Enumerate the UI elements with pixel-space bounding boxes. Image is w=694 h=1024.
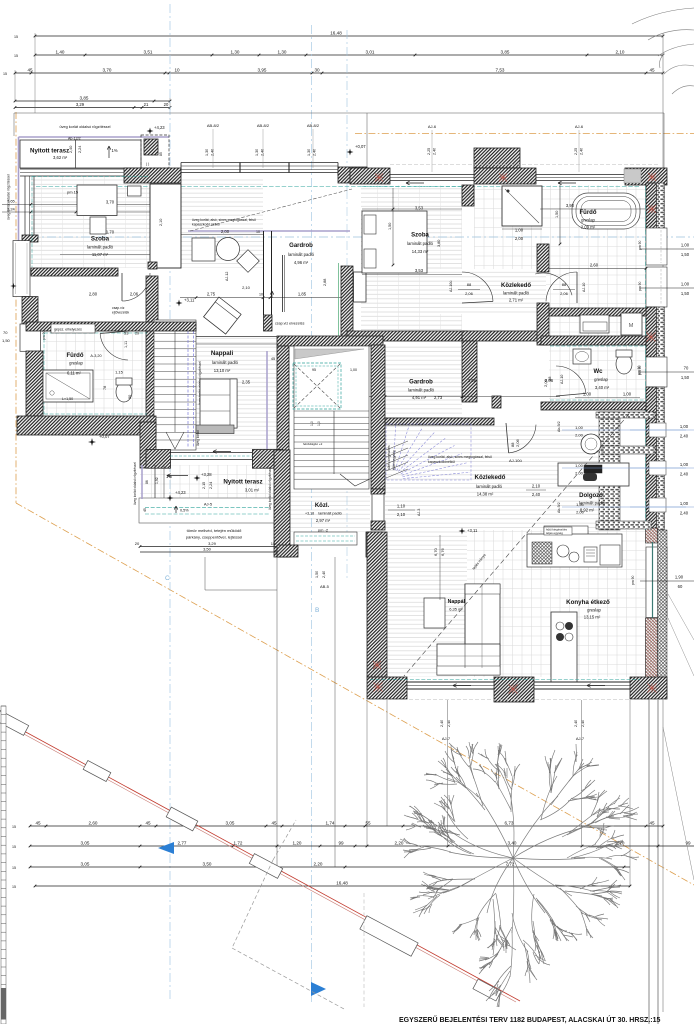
svg-text:üveg korlát oldalsó rögzítésse: üveg korlát oldalsó rögzítéssel (133, 462, 137, 505)
svg-text:AJ-7: AJ-7 (576, 736, 585, 741)
svg-text:1,30: 1,30 (278, 50, 287, 55)
svg-text:88: 88 (562, 282, 567, 287)
svg-text:1,15: 1,15 (115, 370, 124, 375)
svg-text:1,92: 1,92 (155, 477, 159, 484)
svg-text:15: 15 (12, 885, 16, 889)
svg-text:kültéri egység: kültéri egység (392, 450, 396, 470)
svg-text:2,73: 2,73 (434, 395, 443, 400)
svg-text:AB-8/2: AB-8/2 (257, 123, 270, 128)
svg-text:1,00: 1,00 (515, 228, 524, 233)
svg-text:3,05: 3,05 (81, 841, 90, 846)
svg-text:1,11: 1,11 (124, 341, 128, 348)
svg-text:45: 45 (145, 821, 151, 826)
svg-text:2,25: 2,25 (574, 148, 578, 155)
svg-text:1,50: 1,50 (555, 211, 559, 218)
svg-text:3,29: 3,29 (208, 541, 217, 546)
svg-text:2,88: 2,88 (323, 279, 327, 286)
svg-text:1,50: 1,50 (681, 252, 690, 257)
svg-text:90: 90 (128, 395, 132, 399)
svg-text:3,70: 3,70 (103, 68, 112, 73)
svg-text:2,10: 2,10 (397, 512, 406, 517)
svg-text:2,06: 2,06 (545, 378, 554, 383)
svg-text:+4,23: +4,23 (154, 125, 165, 130)
svg-text:45: 45 (649, 68, 655, 73)
svg-text:3,05: 3,05 (81, 862, 90, 867)
svg-text:Konyha étkező: Konyha étkező (566, 599, 610, 606)
svg-text:3,50: 3,50 (203, 547, 212, 552)
svg-text:3,85: 3,85 (80, 96, 89, 101)
svg-text:greslap: greslap (581, 218, 595, 223)
svg-text:teljes egység: teljes egység (546, 531, 563, 535)
svg-text:+3,11: +3,11 (184, 298, 195, 303)
svg-text:1,30: 1,30 (205, 149, 209, 156)
svg-text:20: 20 (164, 102, 169, 107)
svg-text:1,50: 1,50 (315, 571, 319, 578)
svg-text:üveg korlát, alsó, sínes megfo: üveg korlát, alsó, sínes megfogással, fe… (428, 455, 492, 459)
svg-text:3,53: 3,53 (415, 206, 424, 211)
svg-text:AJ-10: AJ-10 (560, 375, 564, 384)
svg-text:1,00: 1,00 (680, 462, 689, 467)
svg-text:Nappáli: Nappáli (448, 599, 467, 605)
svg-text:4,91 m²: 4,91 m² (412, 395, 427, 400)
svg-text:laminált padló: laminált padló (407, 241, 434, 246)
svg-text:6,73: 6,73 (505, 821, 514, 826)
svg-text:3,50: 3,50 (203, 862, 212, 867)
svg-text:Wc: Wc (594, 369, 604, 375)
svg-text:C: C (165, 575, 170, 582)
svg-text:2,40: 2,40 (261, 149, 265, 156)
svg-text:3,01: 3,01 (366, 50, 375, 55)
svg-text:2,00: 2,00 (515, 236, 524, 241)
svg-text:3,62 m²: 3,62 m² (53, 155, 68, 160)
svg-text:88: 88 (467, 282, 472, 287)
svg-text:Nappali: Nappali (211, 350, 234, 357)
svg-text:2,00: 2,00 (575, 471, 584, 476)
svg-text:15: 15 (14, 54, 18, 58)
svg-text:3,40 m²: 3,40 m² (595, 385, 610, 390)
svg-text:Fürdő: Fürdő (67, 353, 84, 359)
svg-text:+0,07: +0,07 (99, 434, 110, 439)
svg-text:1,70: 1,70 (106, 230, 115, 235)
svg-text:2,40: 2,40 (313, 149, 317, 156)
svg-text:Szoba: Szoba (91, 236, 110, 243)
svg-text:85: 85 (159, 152, 163, 156)
svg-text:üveg korlát oldalsó rögzítésse: üveg korlát oldalsó rögzítéssel (59, 125, 110, 129)
svg-text:45: 45 (271, 357, 275, 361)
svg-text:1,20: 1,20 (293, 841, 302, 846)
svg-text:1,50: 1,50 (681, 291, 690, 296)
svg-text:14,38 m²: 14,38 m² (477, 492, 494, 497)
svg-text:Dolgozó: Dolgozó (579, 493, 603, 499)
svg-text:29: 29 (135, 332, 139, 336)
svg-text:86: 86 (145, 480, 149, 484)
svg-text:3,29: 3,29 (76, 102, 85, 107)
svg-text:1,00: 1,00 (575, 463, 584, 468)
svg-text:1,00: 1,00 (583, 392, 592, 397)
svg-text:15: 15 (12, 866, 16, 870)
svg-text:2,40: 2,40 (532, 492, 541, 497)
svg-text:1%: 1% (112, 148, 118, 153)
svg-text:3,90: 3,90 (566, 203, 575, 208)
svg-text:0,5%: 0,5% (180, 509, 189, 513)
svg-text:laminált padló: laminált padló (288, 252, 315, 257)
svg-text:1,50: 1,50 (2, 338, 11, 343)
svg-text:2,71 m²: 2,71 m² (509, 298, 524, 303)
svg-text:greslap: greslap (594, 377, 608, 382)
svg-text:16,48: 16,48 (330, 31, 342, 36)
svg-text:1,50: 1,50 (681, 375, 690, 380)
svg-text:( ): ( ) (146, 162, 149, 166)
svg-text:15: 15 (3, 72, 7, 76)
svg-text:+0,07: +0,07 (355, 144, 366, 149)
svg-text:1,00: 1,00 (680, 424, 689, 429)
svg-text:EGYSZERŰ BEJELENTÉSI TERV 1182: EGYSZERŰ BEJELENTÉSI TERV 1182 BUDAPEST,… (399, 1015, 661, 1024)
svg-text:Fürdő: Fürdő (580, 210, 597, 216)
svg-text:2,06: 2,06 (465, 291, 474, 296)
svg-text:AJ-5: AJ-5 (204, 502, 213, 507)
svg-text:Gardrob: Gardrob (289, 243, 313, 249)
svg-text:99: 99 (338, 841, 344, 846)
svg-text:16,48: 16,48 (336, 881, 348, 886)
svg-text:1,90: 1,90 (675, 575, 684, 580)
svg-text:greslap: greslap (587, 608, 601, 613)
svg-text:2,40: 2,40 (433, 148, 437, 155)
svg-text:1,0: 1,0 (317, 421, 321, 426)
svg-text:1,00: 1,00 (680, 501, 689, 506)
svg-text:AJ-6: AJ-6 (575, 124, 584, 129)
svg-text:2,00: 2,00 (221, 229, 230, 234)
svg-text:1,40: 1,40 (56, 50, 65, 55)
svg-text:+3,28: +3,28 (201, 472, 212, 477)
svg-text:2,75: 2,75 (207, 292, 216, 297)
svg-text:2,06: 2,06 (130, 292, 139, 297)
svg-text:21: 21 (144, 102, 149, 107)
svg-text:3,40: 3,40 (508, 841, 517, 846)
svg-text:Nyitott terasz: Nyitott terasz (223, 479, 262, 486)
svg-text:60: 60 (678, 584, 683, 589)
svg-text:laminált padló: laminált padló (318, 512, 341, 516)
svg-text:2,09 m²: 2,09 m² (581, 225, 596, 230)
svg-text:30: 30 (314, 68, 320, 73)
svg-text:70: 70 (684, 366, 689, 371)
svg-text:2,15: 2,15 (202, 482, 206, 489)
svg-text:tömör mellvéd, tetején működő: tömör mellvéd, tetején működő (187, 528, 242, 533)
svg-text:2,10: 2,10 (159, 219, 163, 226)
svg-text:Szoba: Szoba (411, 233, 429, 239)
svg-text:2,24: 2,24 (78, 146, 82, 153)
svg-text:2,40: 2,40 (680, 511, 689, 516)
svg-text:10: 10 (259, 293, 263, 297)
svg-text:Nyitott terasz: Nyitott terasz (30, 148, 69, 155)
svg-text:üveg korlát, alsó, sínes megfo: üveg korlát, alsó, sínes megfogással, fe… (192, 218, 256, 222)
svg-text:üveg korlát oldalsó rögzítésse: üveg korlát oldalsó rögzítéssel (268, 467, 272, 510)
svg-text:2,24: 2,24 (209, 482, 213, 489)
svg-text:hűtés kiegészítés: hűtés kiegészítés (387, 445, 391, 470)
svg-text:15: 15 (271, 541, 276, 546)
svg-text:14,33 m²: 14,33 m² (412, 249, 429, 254)
svg-text:A-3,20: A-3,20 (90, 354, 101, 358)
svg-text:AJ-3: AJ-3 (417, 509, 421, 516)
svg-text:Közl.: Közl. (315, 503, 330, 509)
svg-text:AB-8/2: AB-8/2 (307, 123, 320, 128)
svg-text:1,10: 1,10 (397, 504, 406, 509)
svg-text:2,60: 2,60 (590, 263, 599, 268)
svg-text:1,00: 1,00 (575, 425, 584, 430)
svg-text:AJ-10ü: AJ-10ü (509, 458, 522, 463)
svg-text:1,30: 1,30 (307, 149, 311, 156)
svg-text:csap.víz elvezetés: csap.víz elvezetés (275, 322, 305, 326)
svg-text:45: 45 (35, 821, 41, 826)
svg-text:1%: 1% (166, 474, 172, 479)
svg-text:párkány, cseppentővel, lejtéss: párkány, cseppentővel, lejtéssel (186, 535, 243, 540)
svg-text:53: 53 (124, 331, 129, 336)
svg-text:AJ-12: AJ-12 (225, 272, 229, 281)
svg-text:3,80: 3,80 (437, 240, 441, 247)
svg-text:laminált padló: laminált padló (476, 484, 503, 489)
svg-text:+3,18: +3,18 (305, 512, 314, 516)
svg-text:2,20: 2,20 (314, 862, 323, 867)
svg-text:1,00: 1,00 (623, 392, 632, 397)
svg-text:2,10: 2,10 (616, 50, 625, 55)
svg-text:AJ-7: AJ-7 (442, 736, 451, 741)
svg-text:2,40: 2,40 (440, 720, 444, 727)
svg-text:+3,11: +3,11 (467, 528, 478, 533)
svg-text:2,40: 2,40 (69, 146, 73, 153)
svg-text:20: 20 (135, 541, 140, 546)
svg-text:70: 70 (3, 330, 8, 335)
svg-text:2,00: 2,00 (575, 433, 584, 438)
svg-text:üveg korlát oldalsó rögzítésse: üveg korlát oldalsó rögzítéssel (7, 174, 11, 220)
svg-text:1,30: 1,30 (255, 149, 259, 156)
svg-text:2,40: 2,40 (574, 720, 578, 727)
svg-text:3,51: 3,51 (144, 50, 153, 55)
svg-text:ejtővezeték: ejtővezeték (112, 311, 129, 315)
svg-text:üveg korlát: üveg korlát (196, 430, 200, 446)
svg-text:45: 45 (27, 68, 33, 73)
svg-text:AJ-10: AJ-10 (582, 283, 586, 292)
svg-text:greslap: greslap (69, 361, 83, 366)
svg-text:Gardrob: Gardrob (409, 380, 433, 386)
svg-text:2,06: 2,06 (515, 438, 520, 447)
svg-text:3,95: 3,95 (258, 68, 267, 73)
svg-text:15: 15 (12, 825, 16, 829)
svg-text:6,11 m²: 6,11 m² (67, 371, 81, 376)
svg-text:pm 90: pm 90 (638, 281, 642, 291)
svg-text:45: 45 (271, 821, 277, 826)
svg-text:L=1,50: L=1,50 (62, 397, 73, 401)
svg-text:2,06: 2,06 (560, 291, 569, 296)
svg-text:Közlekedő: Közlekedő (475, 474, 506, 481)
svg-text:10: 10 (256, 230, 260, 234)
svg-text:1,30: 1,30 (231, 50, 240, 55)
svg-text:felülvilágító +2: felülvilágító +2 (303, 442, 323, 446)
svg-text:1,0: 1,0 (310, 421, 314, 426)
svg-text:3,70: 3,70 (106, 200, 115, 205)
svg-text:2,40: 2,40 (580, 148, 584, 155)
svg-text:AB-8/2: AB-8/2 (207, 123, 220, 128)
svg-text:3,53: 3,53 (415, 268, 424, 273)
svg-text:45: 45 (649, 821, 655, 826)
svg-text:1,00: 1,00 (681, 282, 690, 287)
svg-text:10: 10 (174, 68, 180, 73)
svg-text:2,40: 2,40 (322, 571, 326, 578)
svg-text:3,05: 3,05 (226, 821, 235, 826)
svg-text:45: 45 (143, 508, 147, 512)
svg-text:Közlekedő: Közlekedő (501, 283, 531, 289)
svg-text:2,24: 2,24 (7, 206, 16, 211)
svg-text:1,74: 1,74 (326, 821, 335, 826)
svg-text:Ab-9/2: Ab-9/2 (557, 502, 561, 513)
svg-text:2,40: 2,40 (680, 472, 689, 477)
svg-text:15: 15 (14, 35, 18, 39)
svg-text:13,15 m²: 13,15 m² (584, 615, 601, 620)
svg-text:gépsz. elhelyezés: gépsz. elhelyezés (54, 328, 82, 332)
svg-text:2,80: 2,80 (89, 292, 98, 297)
svg-text:pm 15: pm 15 (67, 190, 79, 195)
svg-text:2,35: 2,35 (242, 380, 251, 385)
svg-text:csap.víz: csap.víz (112, 306, 125, 310)
svg-text:2,40: 2,40 (680, 434, 689, 439)
svg-text:1,72: 1,72 (234, 841, 243, 846)
svg-text:2,10: 2,10 (242, 285, 251, 290)
svg-text:pm 90: pm 90 (637, 365, 641, 375)
svg-text:4,96 m²: 4,96 m² (294, 260, 309, 265)
svg-text:laminált padló: laminált padló (212, 360, 239, 365)
svg-text:2,25: 2,25 (427, 148, 431, 155)
svg-text:laminált padló: laminált padló (87, 245, 114, 250)
svg-text:6,76: 6,76 (440, 547, 445, 556)
svg-text:AB-5: AB-5 (320, 584, 330, 589)
svg-text:Ab-9/2: Ab-9/2 (557, 421, 561, 432)
svg-text:95: 95 (312, 368, 316, 372)
svg-text:15: 15 (12, 845, 16, 849)
svg-text:AJ-10ü: AJ-10ü (449, 281, 453, 292)
svg-text:pm 90: pm 90 (638, 240, 642, 250)
svg-text:2,06: 2,06 (468, 378, 477, 383)
svg-text:1,50: 1,50 (576, 502, 585, 507)
svg-text:M: M (629, 323, 634, 329)
svg-text:2,60: 2,60 (89, 821, 98, 826)
svg-text:2,20: 2,20 (395, 841, 404, 846)
svg-text:78: 78 (103, 386, 107, 390)
svg-text:6,70: 6,70 (433, 547, 438, 556)
svg-text:kapaszkodónélkül: kapaszkodónélkül (428, 460, 455, 464)
svg-text:1,50: 1,50 (388, 223, 392, 230)
svg-text:pm 90: pm 90 (631, 575, 635, 585)
svg-text:1,00: 1,00 (681, 243, 690, 248)
svg-text:2,10: 2,10 (532, 484, 541, 489)
svg-text:1,85: 1,85 (298, 292, 307, 297)
svg-text:2,97 m²: 2,97 m² (316, 518, 331, 523)
svg-text:2,00: 2,00 (576, 510, 585, 515)
svg-text:3,85: 3,85 (501, 50, 510, 55)
svg-text:laminált padló: laminált padló (408, 388, 435, 393)
svg-text:1,00: 1,00 (350, 368, 357, 372)
svg-text:2,77: 2,77 (178, 841, 187, 846)
svg-text:13,10 m²: 13,10 m² (214, 368, 231, 373)
svg-text:55: 55 (365, 821, 371, 826)
svg-text:B: B (315, 607, 319, 614)
svg-text:1,65: 1,65 (7, 199, 16, 204)
svg-text:laminált padló: laminált padló (503, 291, 530, 296)
svg-text:AJ-6: AJ-6 (428, 124, 437, 129)
svg-text:2,40: 2,40 (211, 149, 215, 156)
svg-text:3,01 m²: 3,01 m² (245, 488, 260, 493)
svg-text:+4,23: +4,23 (175, 490, 186, 495)
svg-text:7,53: 7,53 (496, 68, 505, 73)
